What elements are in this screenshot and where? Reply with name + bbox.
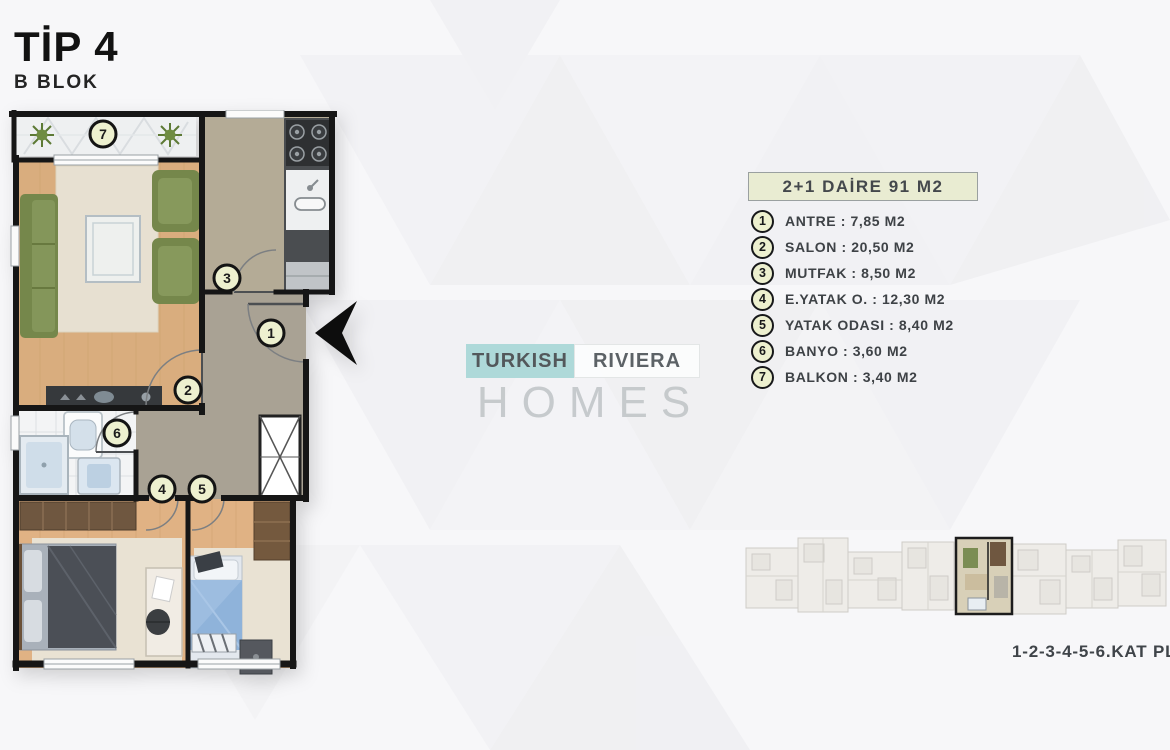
plan-title: TİP 4	[14, 26, 119, 68]
legend-num-badge: 7	[751, 366, 774, 389]
entrance-arrow-icon	[315, 301, 357, 365]
legend-item-antre: 1 ANTRE : 7,85 M2	[748, 208, 998, 234]
room-marker-salon: 2	[175, 377, 201, 403]
legend-item-yatak: 5 YATAK ODASI : 8,40 M2	[748, 312, 998, 338]
svg-text:6: 6	[113, 425, 121, 441]
legend-item-label: BANYO : 3,60 M2	[785, 343, 908, 359]
legend-rows: 1 ANTRE : 7,85 M2 2 SALON : 20,50 M2 3 M…	[748, 208, 998, 390]
legend-num-badge: 1	[751, 210, 774, 233]
double-bed	[16, 544, 116, 650]
legend-item-salon: 2 SALON : 20,50 M2	[748, 234, 998, 260]
legend-num-badge: 5	[751, 314, 774, 337]
legend-item-label: MUTFAK : 8,50 M2	[785, 265, 916, 281]
legend-item-mutfak: 3 MUTFAK : 8,50 M2	[748, 260, 998, 286]
legend-num-badge: 3	[751, 262, 774, 285]
key-plan-caption: 1-2-3-4-5-6.KAT PLANI	[1012, 642, 1170, 662]
svg-text:2: 2	[184, 382, 192, 398]
svg-text:1: 1	[267, 325, 275, 341]
svg-text:4: 4	[158, 481, 166, 497]
svg-text:7: 7	[99, 126, 107, 142]
legend-num-badge: 4	[751, 288, 774, 311]
single-bed	[190, 551, 242, 668]
legend-header: 2+1 DAİRE 91 M2	[748, 172, 978, 201]
shaft	[260, 416, 300, 498]
sink-icon	[286, 170, 330, 230]
legend-item-eyatak: 4 E.YATAK O. : 12,30 M2	[748, 286, 998, 312]
plan-title-block: TİP 4 B BLOK	[14, 26, 119, 94]
floorplan-drawing: 7 3 1 2 6 4 5	[8, 110, 366, 694]
desk-and-chair	[146, 568, 182, 656]
legend-item-label: BALKON : 3,40 M2	[785, 369, 918, 385]
legend-num-badge: 6	[751, 340, 774, 363]
watermark-homes: HOMES	[462, 378, 718, 428]
watermark-riviera: RIVIERA	[574, 344, 700, 378]
tv-unit	[46, 386, 162, 408]
key-plan-highlighted-unit	[956, 538, 1012, 614]
watermark-turkish: TURKISH	[466, 344, 574, 378]
legend-num-badge: 2	[751, 236, 774, 259]
key-plan	[742, 530, 1170, 635]
room-marker-yatak: 5	[189, 476, 215, 502]
coffee-table	[86, 216, 140, 282]
sofa	[20, 194, 58, 338]
toilet-icon	[78, 458, 120, 494]
legend-item-label: E.YATAK O. : 12,30 M2	[785, 291, 945, 307]
room-marker-banyo: 6	[104, 420, 130, 446]
room-marker-antre: 1	[258, 320, 284, 346]
room-marker-eyatak: 4	[149, 476, 175, 502]
plan-subtitle: B BLOK	[14, 72, 119, 94]
legend-item-balkon: 7 BALKON : 3,40 M2	[748, 364, 998, 390]
striped-cushions	[192, 634, 236, 652]
room-legend: 2+1 DAİRE 91 M2 1 ANTRE : 7,85 M2 2 SALO…	[748, 172, 998, 390]
svg-text:5: 5	[198, 481, 206, 497]
wardrobe	[254, 502, 290, 560]
room-marker-mutfak: 3	[214, 265, 240, 291]
stove-icon	[286, 120, 330, 166]
legend-item-label: SALON : 20,50 M2	[785, 239, 914, 255]
svg-text:3: 3	[223, 270, 231, 286]
legend-item-label: ANTRE : 7,85 M2	[785, 213, 905, 229]
room-marker-balkon: 7	[90, 121, 116, 147]
legend-item-banyo: 6 BANYO : 3,60 M2	[748, 338, 998, 364]
wardrobe	[20, 502, 136, 530]
legend-item-label: YATAK ODASI : 8,40 M2	[785, 317, 954, 333]
watermark: TURKISH RIVIERA	[466, 344, 700, 378]
shower-icon	[20, 436, 68, 494]
